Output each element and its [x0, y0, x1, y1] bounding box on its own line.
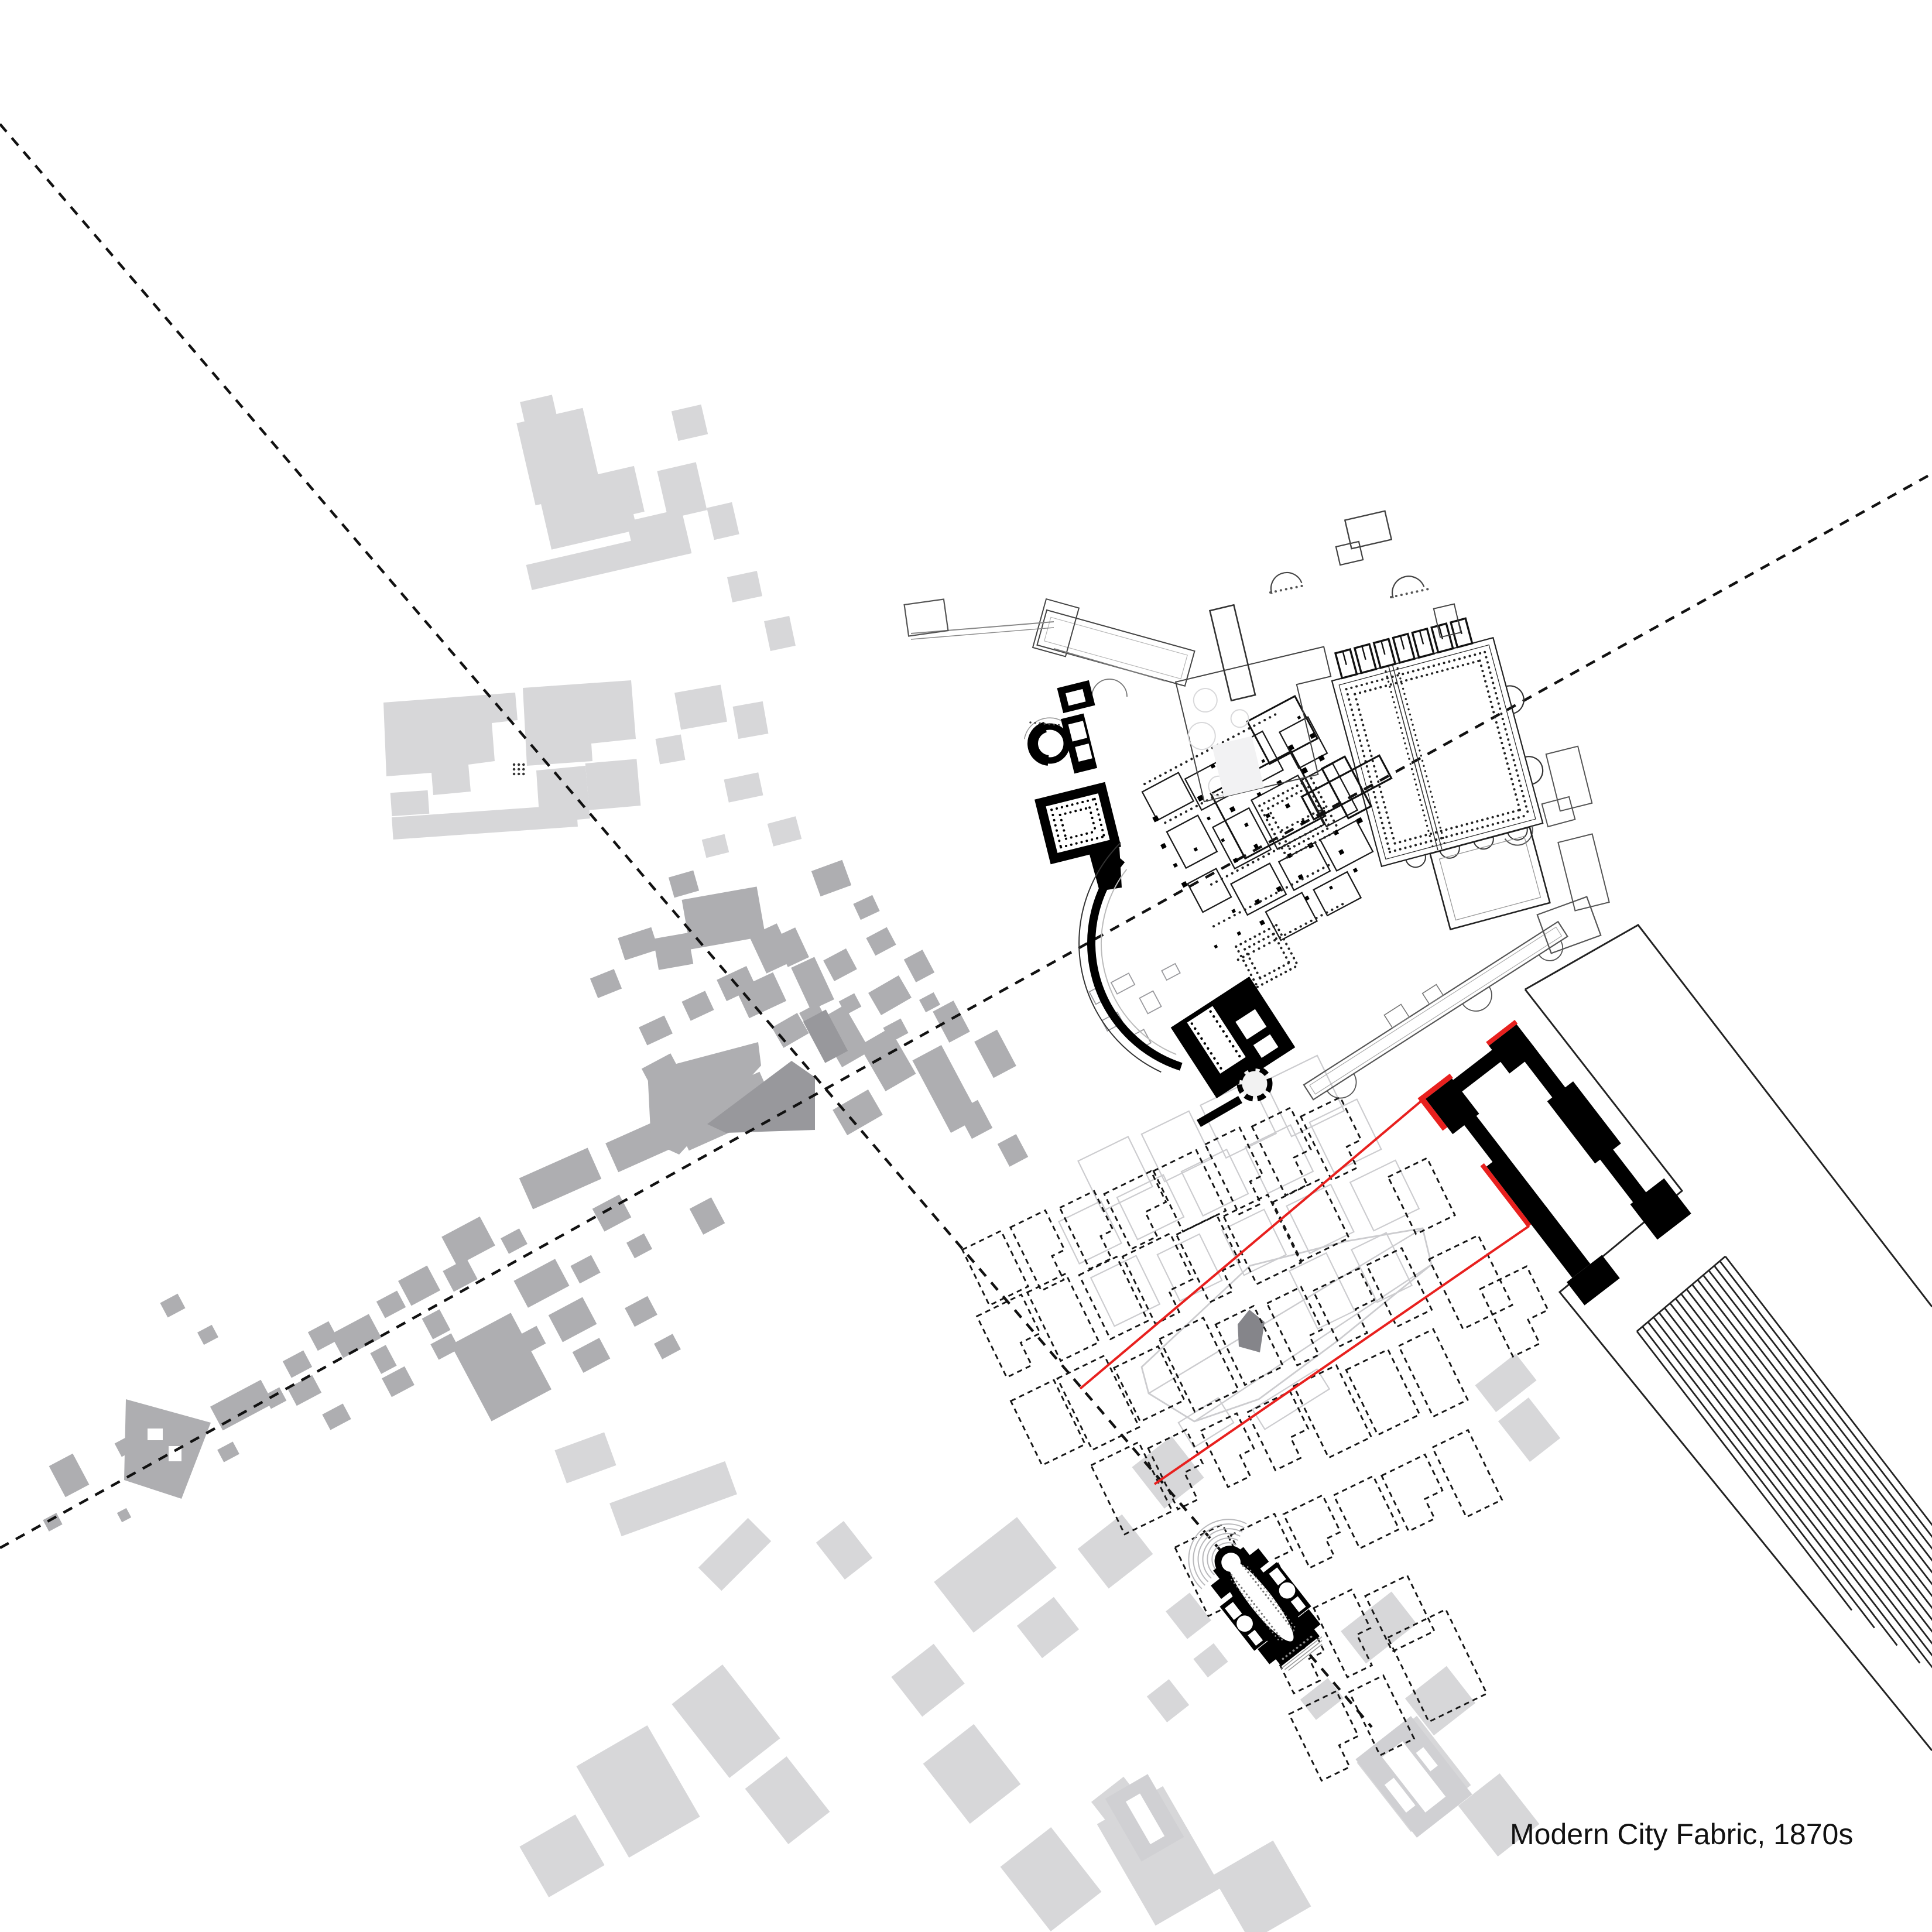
svg-text:Modern City Fabric, 1870s: Modern City Fabric, 1870s [1510, 1818, 1853, 1851]
